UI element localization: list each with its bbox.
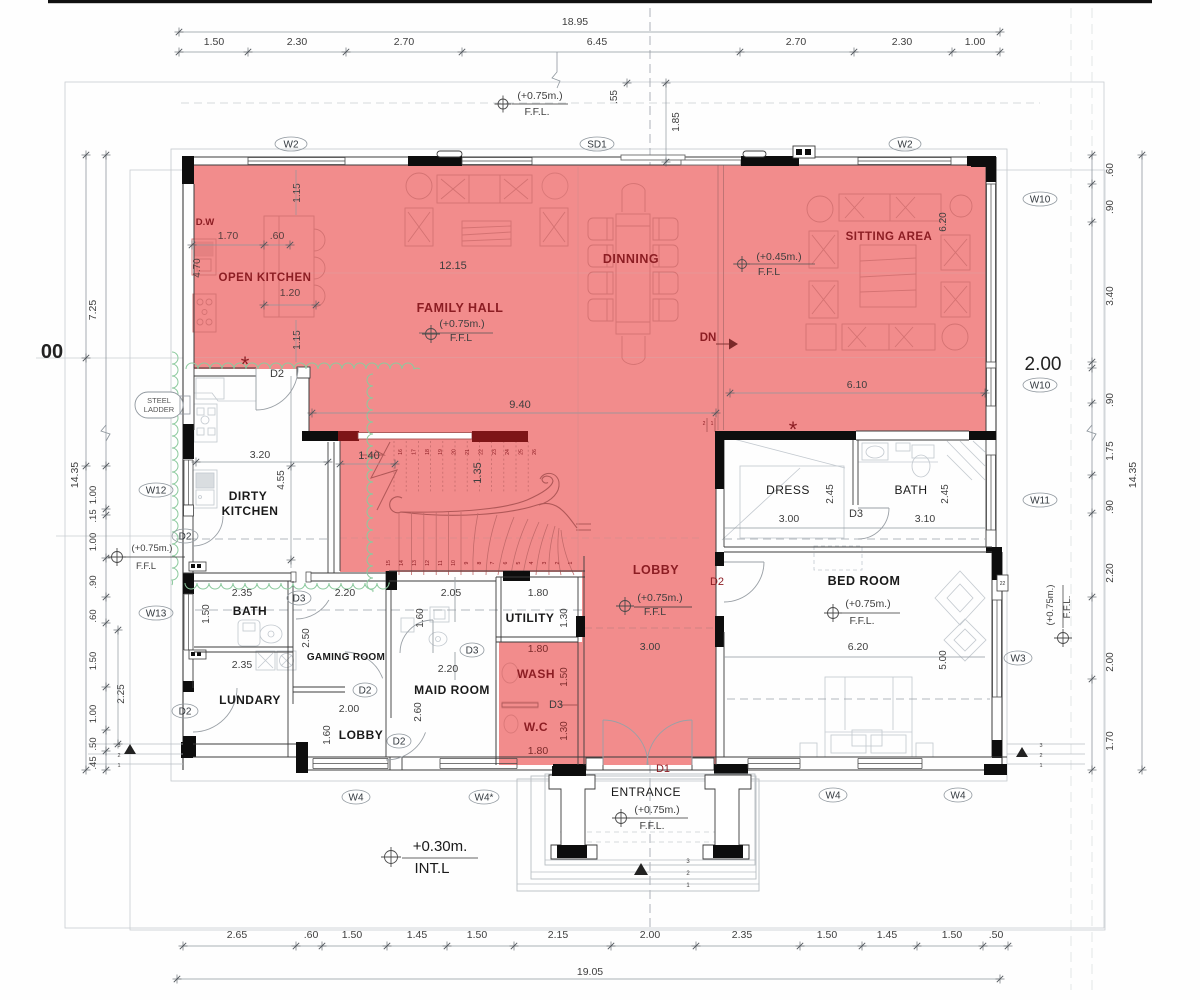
svg-text:17: 17: [411, 449, 417, 455]
svg-text:*: *: [789, 417, 798, 442]
svg-text:SD1: SD1: [587, 140, 607, 151]
svg-text:1.00: 1.00: [965, 36, 986, 48]
svg-text:ENTRANCE: ENTRANCE: [611, 785, 681, 799]
svg-text:W3: W3: [1011, 654, 1026, 665]
svg-text:(+0.45m.): (+0.45m.): [756, 251, 801, 263]
svg-text:1.60: 1.60: [415, 608, 426, 628]
svg-text:INT.L: INT.L: [414, 860, 449, 877]
svg-text:(+0.75m.): (+0.75m.): [1045, 585, 1056, 626]
svg-text:7: 7: [490, 561, 496, 564]
svg-text:00: 00: [41, 341, 63, 363]
svg-text:1.85: 1.85: [671, 112, 682, 132]
svg-text:W4*: W4*: [475, 793, 494, 804]
svg-text:W4: W4: [951, 791, 966, 802]
svg-text:.45: .45: [88, 756, 99, 769]
svg-text:1.30: 1.30: [559, 608, 570, 628]
svg-text:1.20: 1.20: [280, 287, 301, 299]
svg-text:25: 25: [519, 449, 525, 455]
svg-text:W4: W4: [349, 793, 364, 804]
svg-text:2.45: 2.45: [825, 484, 836, 504]
svg-text:8: 8: [477, 561, 483, 564]
svg-text:1: 1: [568, 561, 574, 564]
svg-text:1.35: 1.35: [472, 462, 484, 483]
svg-text:16: 16: [398, 449, 404, 455]
svg-text:2.35: 2.35: [732, 929, 753, 941]
svg-text:14.35: 14.35: [69, 462, 81, 488]
svg-text:1.50: 1.50: [942, 929, 963, 941]
svg-text:F.F.L: F.F.L: [450, 332, 472, 344]
svg-text:(+0.75m.): (+0.75m.): [439, 318, 484, 330]
svg-text:W13: W13: [146, 609, 167, 620]
svg-text:(+0.75m.): (+0.75m.): [637, 592, 682, 604]
svg-text:14.35: 14.35: [1127, 462, 1139, 488]
svg-text:1.50: 1.50: [559, 667, 570, 687]
svg-text:2.00: 2.00: [339, 703, 360, 715]
svg-text:1.70: 1.70: [218, 230, 239, 242]
svg-text:21: 21: [465, 449, 471, 455]
svg-text:1.15: 1.15: [292, 183, 303, 203]
svg-text:2.35: 2.35: [232, 659, 253, 671]
svg-text:1: 1: [711, 421, 714, 427]
svg-text:.50: .50: [989, 929, 1004, 941]
svg-text:2.00: 2.00: [1105, 652, 1116, 672]
svg-text:W10: W10: [1030, 381, 1051, 392]
svg-text:3: 3: [542, 561, 548, 564]
svg-text:.60: .60: [88, 609, 99, 622]
svg-text:.60: .60: [1105, 163, 1116, 177]
svg-text:(+0.75m.): (+0.75m.): [634, 804, 679, 816]
svg-text:3.20: 3.20: [250, 449, 271, 461]
svg-text:14: 14: [399, 560, 405, 566]
svg-text:19: 19: [438, 449, 444, 455]
svg-text:9.40: 9.40: [509, 399, 530, 411]
svg-text:W12: W12: [146, 486, 167, 497]
svg-text:FAMILY HALL: FAMILY HALL: [417, 301, 504, 315]
svg-text:W11: W11: [1030, 496, 1050, 507]
svg-text:2.30: 2.30: [287, 36, 308, 48]
svg-text:.90: .90: [1105, 393, 1116, 407]
svg-text:10: 10: [451, 560, 457, 566]
svg-text:2.00: 2.00: [1025, 354, 1062, 375]
svg-text:1: 1: [117, 763, 120, 769]
svg-text:5: 5: [516, 561, 522, 564]
svg-text:18: 18: [425, 449, 431, 455]
svg-text:*: *: [241, 352, 250, 377]
svg-text:W2: W2: [284, 140, 299, 151]
svg-text:D2: D2: [393, 737, 406, 748]
svg-text:3: 3: [1039, 743, 1042, 749]
svg-text:DRESS: DRESS: [766, 483, 810, 497]
svg-text:6.10: 6.10: [847, 379, 868, 391]
svg-text:F.F.L.: F.F.L.: [1062, 596, 1073, 619]
svg-text:2.15: 2.15: [548, 929, 569, 941]
svg-text:1.00: 1.00: [88, 486, 99, 505]
svg-text:2.20: 2.20: [335, 587, 356, 599]
svg-text:13: 13: [412, 560, 418, 566]
svg-text:BATH: BATH: [233, 604, 267, 618]
svg-text:6.20: 6.20: [848, 641, 869, 653]
svg-text:W4: W4: [826, 791, 841, 802]
svg-text:D3: D3: [849, 508, 863, 520]
svg-text:BED ROOM: BED ROOM: [828, 574, 901, 588]
svg-text:1.50: 1.50: [201, 604, 212, 624]
svg-text:.90: .90: [88, 575, 99, 588]
svg-text:.55: .55: [609, 90, 620, 104]
svg-text:F.F.L: F.F.L: [644, 606, 666, 618]
svg-text:OPEN KITCHEN: OPEN KITCHEN: [219, 272, 312, 284]
svg-text:D2: D2: [270, 368, 284, 380]
svg-text:1.00: 1.00: [88, 705, 99, 724]
svg-text:26: 26: [532, 449, 538, 455]
svg-text:3.00: 3.00: [640, 641, 661, 653]
svg-text:2.20: 2.20: [1105, 563, 1116, 583]
svg-text:.60: .60: [304, 929, 319, 941]
svg-text:1.80: 1.80: [528, 745, 549, 757]
svg-text:1: 1: [1039, 763, 1042, 769]
svg-text:F.F.L: F.F.L: [136, 561, 156, 572]
svg-text:LUNDARY: LUNDARY: [219, 693, 281, 707]
svg-text:2.00: 2.00: [640, 929, 661, 941]
svg-text:7.25: 7.25: [87, 300, 99, 321]
svg-text:23: 23: [492, 449, 498, 455]
svg-text:3.40: 3.40: [1105, 286, 1116, 306]
svg-text:D2: D2: [710, 576, 724, 588]
svg-text:2.65: 2.65: [227, 929, 248, 941]
svg-text:1.50: 1.50: [817, 929, 838, 941]
svg-text:15: 15: [386, 560, 392, 566]
svg-text:2.60: 2.60: [413, 702, 424, 722]
svg-text:SITTING AREA: SITTING AREA: [846, 231, 933, 243]
svg-text:2.50: 2.50: [301, 628, 312, 648]
svg-text:DIRTY: DIRTY: [229, 489, 268, 503]
svg-text:2.20: 2.20: [438, 663, 459, 675]
svg-text:BATH: BATH: [894, 483, 927, 497]
svg-text:LOBBY: LOBBY: [633, 563, 679, 577]
svg-text:5.00: 5.00: [938, 650, 949, 670]
svg-text:2.05: 2.05: [441, 587, 462, 599]
svg-text:3.10: 3.10: [915, 513, 936, 525]
svg-text:2: 2: [117, 753, 120, 759]
svg-text:2: 2: [703, 421, 706, 427]
svg-text:W.C: W.C: [524, 720, 548, 734]
svg-text:4: 4: [529, 561, 535, 564]
svg-text:1.50: 1.50: [342, 929, 363, 941]
svg-text:F.F.L: F.F.L: [758, 266, 780, 278]
svg-text:+0.30m.: +0.30m.: [413, 838, 468, 855]
svg-text:1.40: 1.40: [358, 450, 379, 462]
svg-text:2.70: 2.70: [786, 36, 807, 48]
svg-text:D1: D1: [656, 763, 670, 775]
svg-text:F.F.L.: F.F.L.: [524, 106, 549, 118]
svg-text:4.55: 4.55: [276, 470, 287, 490]
svg-text:DN: DN: [700, 332, 717, 344]
svg-text:WASH: WASH: [517, 667, 555, 681]
svg-text:D2: D2: [179, 532, 192, 543]
svg-text:19.05: 19.05: [577, 966, 603, 978]
svg-text:2.30: 2.30: [892, 36, 913, 48]
svg-text:F.F.L.: F.F.L.: [849, 615, 874, 627]
svg-text:18.95: 18.95: [562, 16, 588, 28]
svg-text:.50: .50: [88, 737, 99, 750]
svg-text:2.70: 2.70: [394, 36, 415, 48]
svg-text:2: 2: [1039, 753, 1042, 759]
svg-text:LOBBY: LOBBY: [339, 728, 384, 742]
svg-text:1.70: 1.70: [1105, 731, 1116, 751]
svg-text:1.00: 1.00: [88, 533, 99, 552]
svg-text:D3: D3: [293, 594, 306, 605]
svg-text:3.00: 3.00: [779, 513, 800, 525]
svg-text:UTILITY: UTILITY: [506, 611, 555, 625]
svg-text:6.45: 6.45: [587, 36, 608, 48]
svg-text:MAID ROOM: MAID ROOM: [414, 683, 490, 697]
svg-text:9: 9: [464, 561, 470, 564]
svg-text:1.45: 1.45: [877, 929, 898, 941]
svg-text:W10: W10: [1030, 195, 1051, 206]
svg-text:(+0.75m.): (+0.75m.): [517, 90, 562, 102]
svg-text:.60: .60: [270, 230, 285, 242]
svg-text:1.30: 1.30: [559, 721, 570, 741]
svg-text:D2: D2: [359, 686, 372, 697]
svg-text:1.50: 1.50: [88, 652, 99, 671]
svg-text:1.80: 1.80: [528, 643, 549, 655]
svg-text:D3: D3: [549, 699, 563, 711]
svg-text:STEEL: STEEL: [147, 396, 171, 405]
svg-text:DINNING: DINNING: [603, 252, 659, 266]
svg-text:4.70: 4.70: [192, 258, 203, 278]
svg-text:24: 24: [505, 449, 511, 455]
svg-text:W2: W2: [898, 140, 913, 151]
svg-text:20: 20: [452, 449, 458, 455]
svg-text:.90: .90: [1105, 500, 1116, 514]
svg-text:22: 22: [478, 449, 484, 455]
svg-text:2: 2: [555, 561, 561, 564]
svg-text:1.75: 1.75: [1105, 441, 1116, 461]
svg-text:D2: D2: [179, 707, 192, 718]
svg-text:KITCHEN: KITCHEN: [222, 504, 279, 518]
svg-text:11: 11: [438, 560, 444, 565]
svg-text:6: 6: [503, 561, 509, 564]
svg-text:2.45: 2.45: [940, 484, 951, 504]
svg-text:.90: .90: [1105, 200, 1116, 214]
svg-text:1.60: 1.60: [322, 725, 333, 745]
svg-text:LADDER: LADDER: [144, 405, 175, 414]
svg-text:2.35: 2.35: [232, 587, 253, 599]
svg-text:12.15: 12.15: [439, 260, 467, 272]
svg-text:D3: D3: [466, 646, 479, 657]
svg-text:12: 12: [425, 560, 431, 566]
svg-text:.15: .15: [88, 509, 99, 522]
svg-text:1.50: 1.50: [204, 36, 225, 48]
svg-text:1.80: 1.80: [528, 587, 549, 599]
svg-text:6.20: 6.20: [938, 212, 949, 232]
svg-text:1.45: 1.45: [407, 929, 428, 941]
svg-text:D.W: D.W: [196, 217, 215, 228]
svg-text:22: 22: [1000, 581, 1006, 587]
svg-text:(+0.75m.): (+0.75m.): [132, 543, 173, 554]
svg-text:1.50: 1.50: [467, 929, 488, 941]
svg-text:F.F.L.: F.F.L.: [639, 820, 664, 832]
svg-text:GAMING ROOM: GAMING ROOM: [307, 652, 385, 663]
svg-text:1.15: 1.15: [292, 330, 303, 350]
svg-text:(+0.75m.): (+0.75m.): [845, 598, 890, 610]
